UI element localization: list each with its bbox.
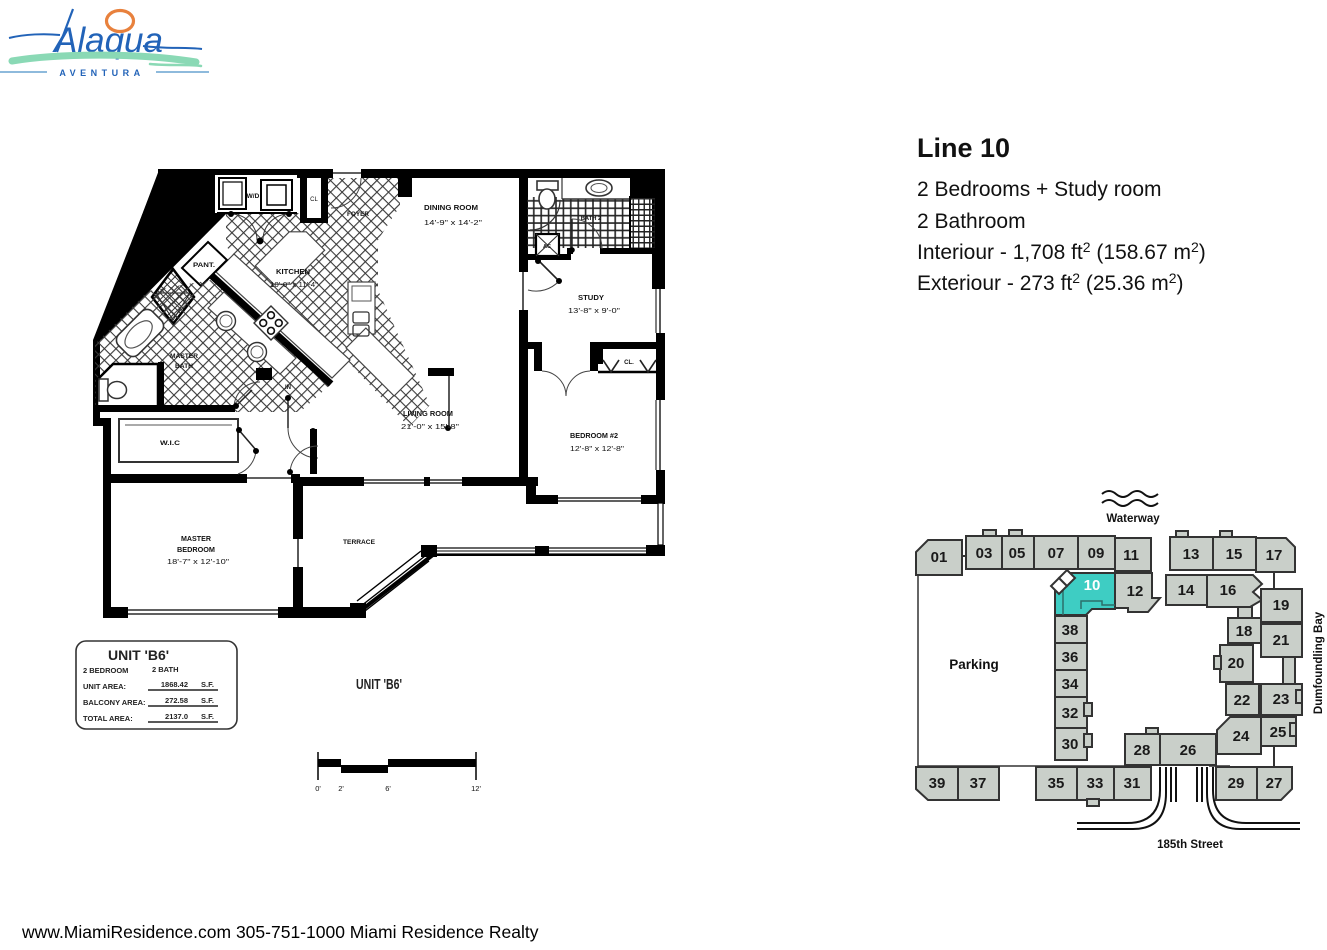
svg-text:34: 34 <box>1062 676 1079 693</box>
svg-text:24: 24 <box>1233 728 1250 745</box>
svg-text:21'-0" x 15'-8": 21'-0" x 15'-8" <box>401 422 459 431</box>
svg-text:18: 18 <box>1236 623 1253 640</box>
svg-text:10: 10 <box>1084 577 1101 594</box>
svg-text:FOYER: FOYER <box>347 211 369 218</box>
svg-text:S.F.: S.F. <box>201 712 214 721</box>
svg-text:39: 39 <box>929 775 946 792</box>
svg-text:05: 05 <box>1009 545 1026 562</box>
svg-text:2 Bedrooms + Study room: 2 Bedrooms + Study room <box>917 178 1162 201</box>
svg-text:TERRACE: TERRACE <box>343 539 375 546</box>
svg-text:09: 09 <box>1088 545 1105 562</box>
svg-text:STUDY: STUDY <box>578 295 604 302</box>
svg-text:UNIT 'B6': UNIT 'B6' <box>356 676 402 693</box>
svg-text:BATH: BATH <box>175 363 194 370</box>
svg-text:2': 2' <box>338 784 344 793</box>
svg-text:14: 14 <box>1178 582 1195 599</box>
svg-text:03: 03 <box>976 545 993 562</box>
svg-text:Waterway: Waterway <box>1106 513 1160 525</box>
svg-text:Interiour - 1,708 ft2 (158.67: Interiour - 1,708 ft2 (158.67 m2) <box>917 239 1206 264</box>
svg-text:28: 28 <box>1134 742 1151 759</box>
svg-text:38: 38 <box>1062 622 1079 639</box>
svg-text:W/D: W/D <box>247 193 260 200</box>
svg-text:07: 07 <box>1048 545 1065 562</box>
svg-text:12: 12 <box>1127 583 1144 600</box>
svg-text:37: 37 <box>970 775 987 792</box>
svg-text:30: 30 <box>1062 736 1079 753</box>
svg-text:29: 29 <box>1228 775 1245 792</box>
svg-text:13: 13 <box>1183 546 1200 563</box>
svg-text:LIVING ROOM: LIVING ROOM <box>403 411 453 418</box>
svg-text:185th Street: 185th Street <box>1157 839 1223 851</box>
svg-text:11: 11 <box>1123 547 1139 564</box>
svg-text:13'-8" x 9'-0": 13'-8" x 9'-0" <box>568 306 620 315</box>
svg-text:23: 23 <box>1273 691 1290 708</box>
svg-text:Parking: Parking <box>949 657 999 672</box>
svg-text:31: 31 <box>1124 775 1141 792</box>
svg-text:Dumfoundling Bay: Dumfoundling Bay <box>1313 611 1325 714</box>
svg-text:CL.: CL. <box>624 360 634 366</box>
svg-text:IN: IN <box>285 385 291 391</box>
svg-text:MASTER: MASTER <box>170 353 199 360</box>
svg-text:KITCHEN: KITCHEN <box>276 269 310 276</box>
svg-text:32: 32 <box>1062 705 1079 722</box>
svg-text:20: 20 <box>1228 655 1245 672</box>
svg-text:MASTER: MASTER <box>181 536 211 543</box>
svg-text:272.58: 272.58 <box>165 696 188 705</box>
svg-text:PANT.: PANT. <box>193 262 215 269</box>
svg-text:DINING ROOM: DINING ROOM <box>424 205 478 212</box>
svg-text:BEDROOM #2: BEDROOM #2 <box>570 433 618 440</box>
svg-text:36: 36 <box>1062 649 1079 666</box>
svg-text:CL: CL <box>310 197 318 203</box>
svg-text:33: 33 <box>1087 775 1104 792</box>
svg-text:BALCONY AREA:: BALCONY AREA: <box>83 698 146 707</box>
svg-text:AC: AC <box>543 244 551 250</box>
svg-text:TOTAL AREA:: TOTAL AREA: <box>83 714 133 723</box>
svg-text:0': 0' <box>315 784 321 793</box>
svg-text:17: 17 <box>1266 547 1283 564</box>
svg-text:www.MiamiResidence.com 305-751: www.MiamiResidence.com 305-751-1000 Miam… <box>21 922 539 942</box>
svg-text:W.I.C: W.I.C <box>160 440 180 447</box>
svg-text:12'-8" x 12'-8": 12'-8" x 12'-8" <box>570 444 624 453</box>
svg-text:S.F.: S.F. <box>201 680 214 689</box>
svg-text:21: 21 <box>1273 632 1290 649</box>
svg-text:19: 19 <box>1273 597 1290 614</box>
svg-text:UNIT AREA:: UNIT AREA: <box>83 682 126 691</box>
svg-text:UNIT 'B6': UNIT 'B6' <box>108 647 169 663</box>
svg-text:2 BATH: 2 BATH <box>152 665 179 674</box>
svg-text:15: 15 <box>1226 546 1243 563</box>
svg-text:S.F.: S.F. <box>201 696 214 705</box>
svg-text:6': 6' <box>385 784 391 793</box>
svg-text:2137.0: 2137.0 <box>165 712 188 721</box>
svg-text:BEDROOM: BEDROOM <box>177 547 215 554</box>
svg-text:2 Bathroom: 2 Bathroom <box>917 210 1026 233</box>
svg-text:Line 10: Line 10 <box>917 133 1010 163</box>
svg-text:27: 27 <box>1266 775 1283 792</box>
svg-text:Exteriour - 273 ft2 (25.36 m2): Exteriour - 273 ft2 (25.36 m2) <box>917 270 1184 295</box>
svg-text:22: 22 <box>1234 692 1251 709</box>
svg-text:18'-7" x 12'-10": 18'-7" x 12'-10" <box>167 557 229 566</box>
svg-text:12': 12' <box>471 784 481 793</box>
svg-text:16: 16 <box>1220 582 1237 599</box>
svg-text:AVENTURA: AVENTURA <box>59 68 144 78</box>
svg-text:2 BEDROOM: 2 BEDROOM <box>83 666 128 675</box>
svg-text:01: 01 <box>931 549 948 566</box>
svg-text:14'-9" x 14'-2": 14'-9" x 14'-2" <box>424 218 482 227</box>
svg-text:35: 35 <box>1048 775 1065 792</box>
svg-text:26: 26 <box>1180 742 1197 759</box>
svg-text:10'-0" x 11'-4": 10'-0" x 11'-4" <box>270 282 319 289</box>
svg-text:1868.42: 1868.42 <box>161 680 188 689</box>
svg-text:25: 25 <box>1270 724 1287 741</box>
